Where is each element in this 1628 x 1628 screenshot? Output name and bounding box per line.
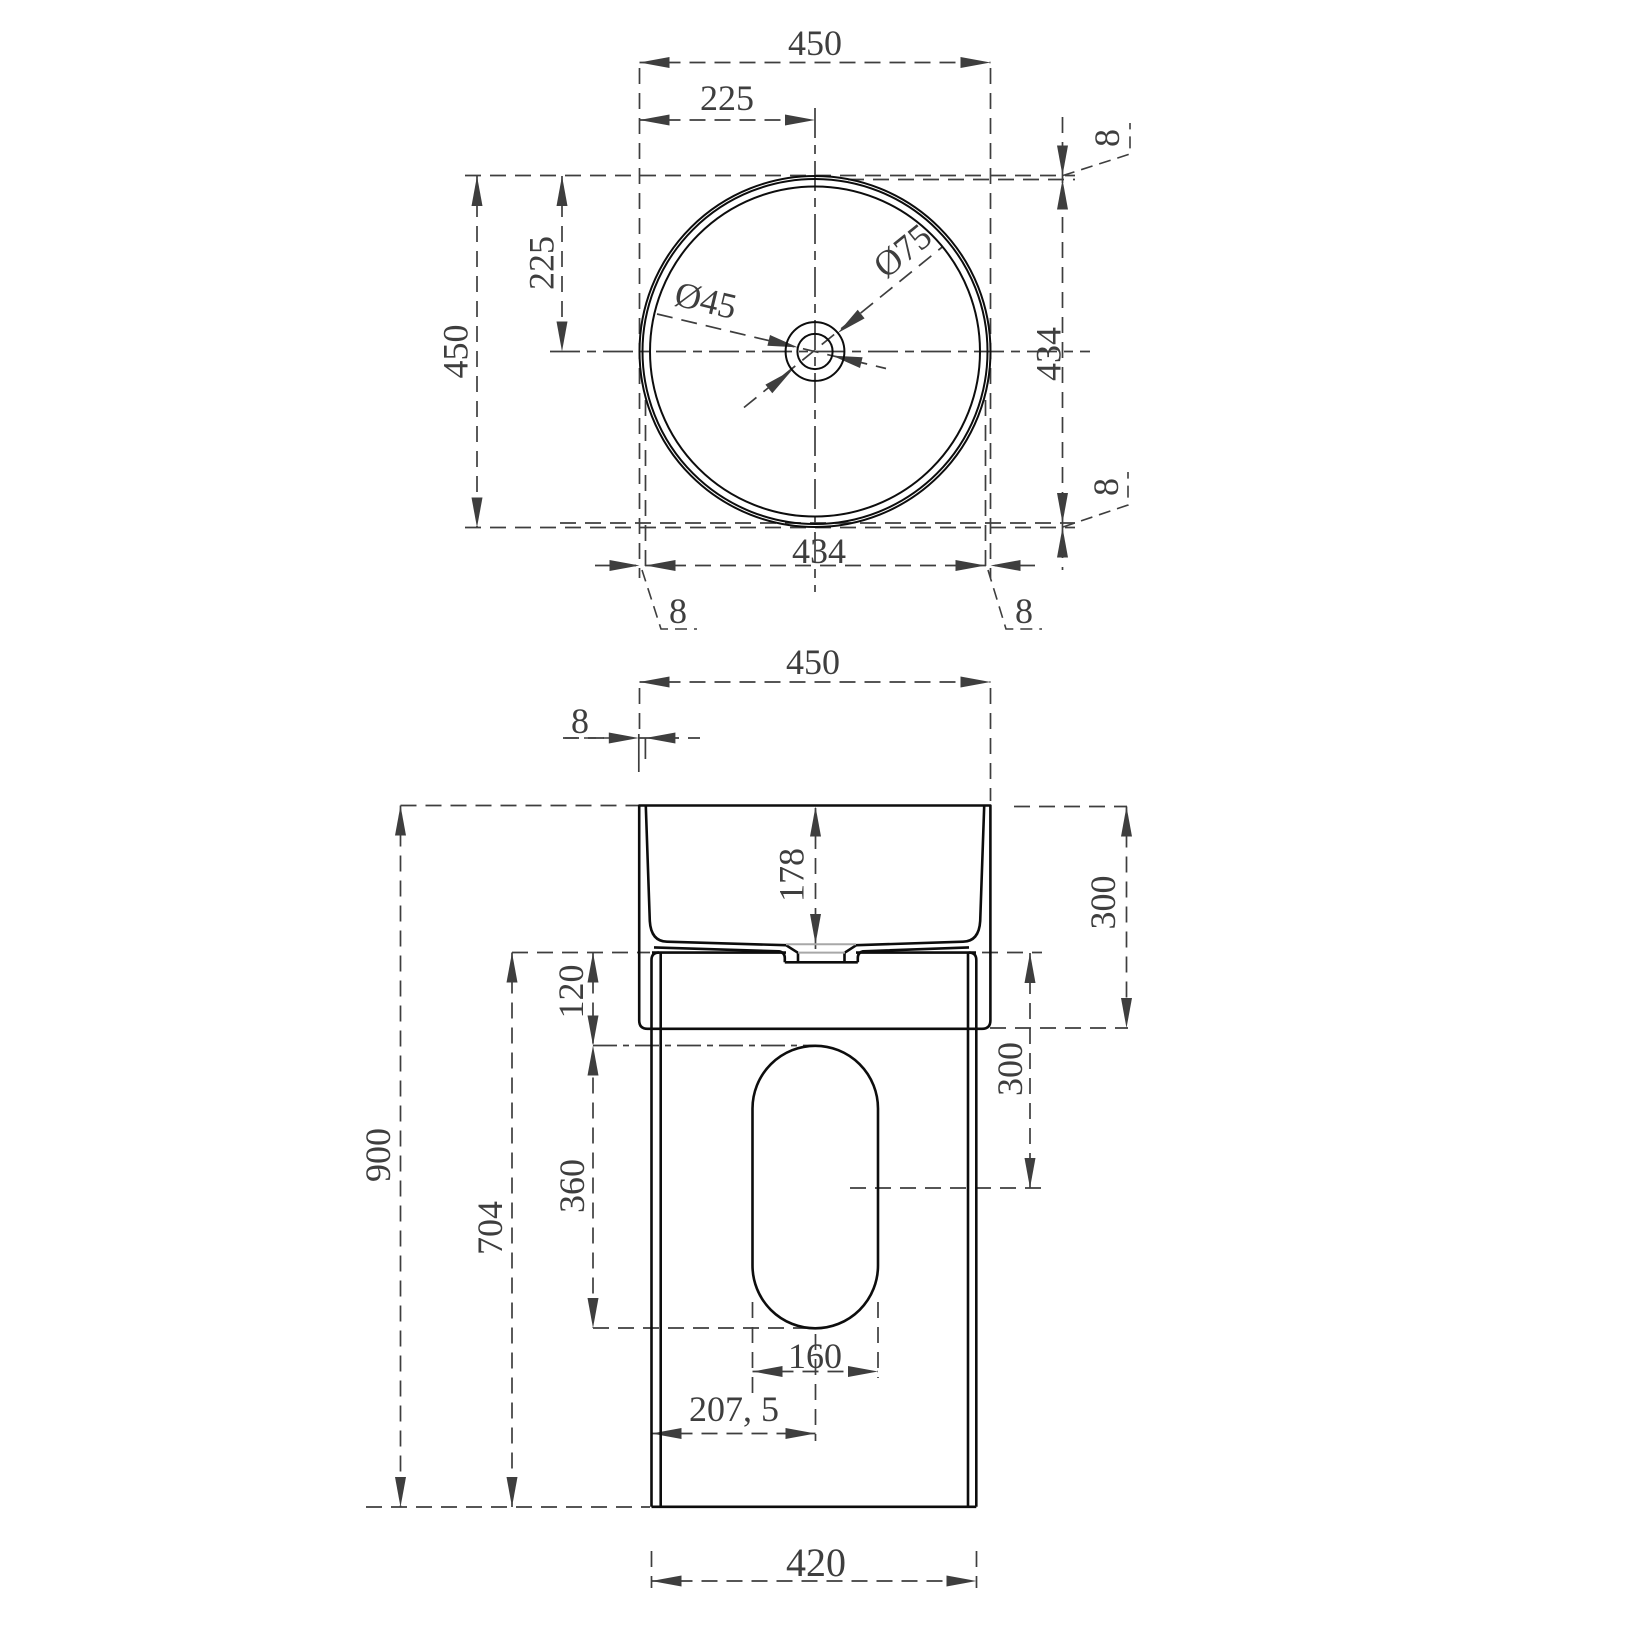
- svg-text:225: 225: [700, 78, 754, 118]
- svg-text:8: 8: [1087, 129, 1127, 147]
- svg-text:360: 360: [552, 1159, 592, 1213]
- svg-text:420: 420: [786, 1540, 846, 1585]
- svg-text:704: 704: [470, 1201, 510, 1255]
- svg-text:120: 120: [551, 965, 591, 1019]
- svg-text:Ø75: Ø75: [866, 216, 939, 286]
- svg-text:8: 8: [571, 701, 589, 741]
- svg-text:300: 300: [1083, 876, 1123, 930]
- svg-text:8: 8: [1015, 591, 1033, 631]
- svg-text:160: 160: [788, 1336, 842, 1376]
- svg-text:300: 300: [990, 1042, 1030, 1096]
- svg-text:8: 8: [669, 591, 687, 631]
- svg-text:225: 225: [522, 236, 562, 290]
- svg-text:434: 434: [1029, 327, 1069, 381]
- svg-text:900: 900: [358, 1128, 398, 1182]
- svg-text:450: 450: [788, 23, 842, 63]
- svg-text:207, 5: 207, 5: [689, 1389, 779, 1429]
- svg-text:8: 8: [1086, 478, 1126, 496]
- svg-text:Ø45: Ø45: [671, 274, 741, 327]
- svg-text:450: 450: [436, 325, 476, 379]
- svg-text:434: 434: [792, 531, 846, 571]
- svg-text:450: 450: [786, 642, 840, 682]
- svg-text:178: 178: [772, 848, 812, 902]
